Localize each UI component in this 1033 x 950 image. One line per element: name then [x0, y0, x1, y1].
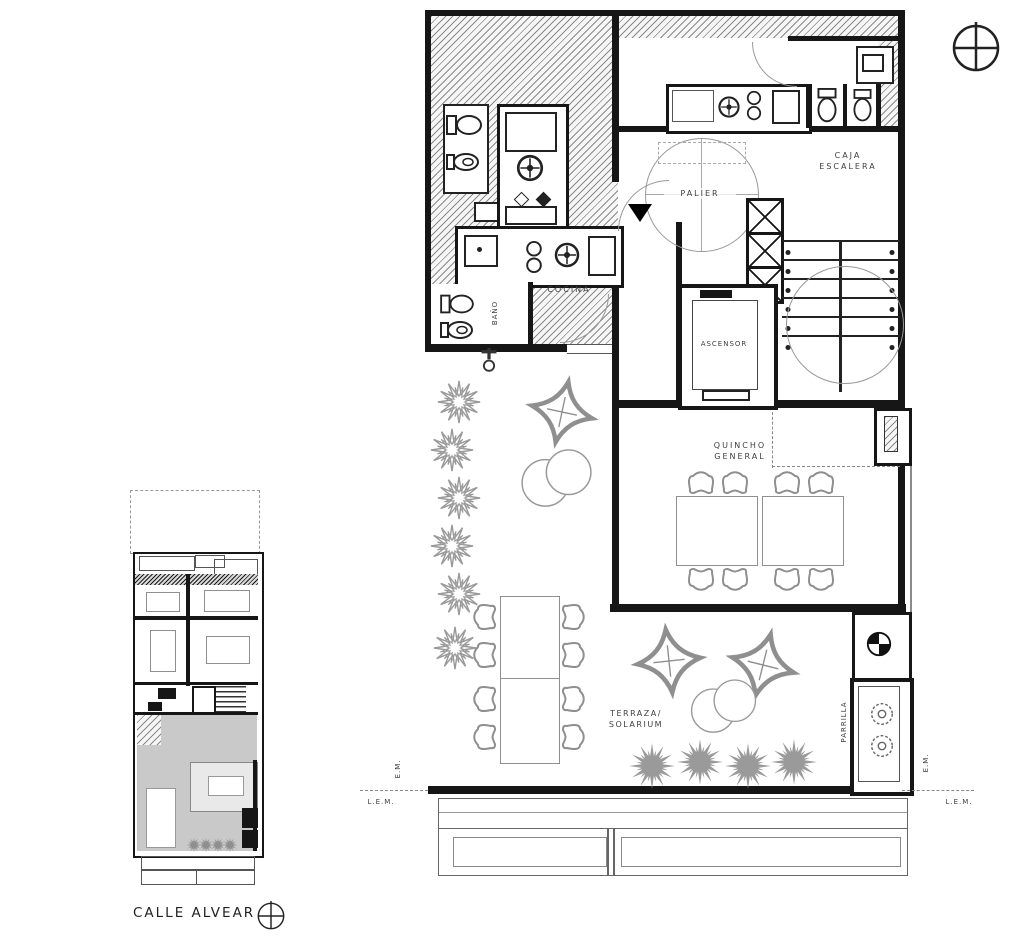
plant-icon: [222, 837, 238, 853]
plant-icon: [723, 741, 773, 791]
service-fixture: [862, 54, 884, 72]
parrilla-label: PARRILLA: [840, 682, 852, 762]
compass-icon: [950, 22, 1002, 74]
faucet-icon: [476, 348, 502, 376]
em-label-right: E.M.: [922, 748, 932, 778]
plant-icon: [769, 737, 819, 787]
chair-icon: [722, 566, 748, 592]
lem-label-right: L.E.M.: [934, 798, 984, 808]
terraza-label-line2: SOLARIUM: [596, 719, 676, 730]
chair-icon: [472, 642, 498, 668]
oven: [505, 206, 557, 225]
elevator-counterweight: [700, 290, 732, 298]
parapet-panel: [621, 837, 901, 867]
wall-stub: [843, 84, 847, 128]
lounge-chair-icon: [519, 369, 604, 454]
plant-icon: [436, 475, 482, 521]
keyplan-table: [146, 788, 176, 848]
toilet-icon: [438, 290, 476, 318]
chair-icon: [774, 566, 800, 592]
fridge: [505, 112, 557, 152]
keyplan-wall: [186, 574, 190, 686]
quincho-label: QUINCHO GENERAL: [698, 440, 782, 462]
chair-icon: [688, 470, 714, 496]
caja-label-line2: ESCALERA: [808, 161, 888, 172]
dining-table: [762, 496, 844, 566]
chair-icon: [722, 470, 748, 496]
wall: [610, 604, 906, 612]
counter-top: [672, 90, 714, 122]
keyplan-sidewalk: [196, 869, 255, 885]
keyplan-table: [206, 636, 250, 664]
keyplan-table: [150, 630, 176, 672]
sink-icon: [745, 90, 763, 122]
chair-icon: [774, 470, 800, 496]
chair-icon: [560, 604, 586, 630]
palier-label: PALIER: [664, 188, 736, 199]
chair-icon: [808, 566, 834, 592]
lem-dashed-line: [360, 790, 428, 791]
chair-icon: [560, 642, 586, 668]
chair-icon: [472, 686, 498, 712]
chair-icon: [560, 686, 586, 712]
plant-icon: [627, 741, 677, 791]
em-label-left: E.M.: [394, 754, 404, 784]
plant-icon: [429, 427, 475, 473]
parapet-divider: [607, 829, 609, 875]
wall-stub: [806, 84, 811, 128]
parapet-strip: [438, 798, 908, 830]
keyplan-parrilla: [242, 808, 258, 828]
keyplan-setback-dashed: [130, 490, 260, 554]
chair-icon: [808, 470, 834, 496]
duct: [884, 416, 898, 452]
wall-stub: [876, 84, 881, 128]
chair-icon: [688, 566, 714, 592]
wall: [788, 36, 905, 41]
counter-end: [588, 236, 616, 276]
wall: [612, 10, 619, 182]
bidet-icon: [438, 318, 478, 342]
bano-label: BAÑO: [491, 283, 505, 343]
keyplan-wall: [135, 616, 258, 620]
hatched-top-band: [618, 16, 899, 38]
keyplan-table: [204, 590, 250, 612]
plant-icon: [436, 379, 482, 425]
keyplan-terrace: [137, 715, 257, 851]
keyplan-hatch-corner: [137, 715, 161, 745]
door-arc: [618, 180, 669, 231]
washer-knob: [477, 247, 482, 252]
round-table-icon: [518, 448, 596, 510]
caja-label-line1: CAJA: [808, 150, 888, 161]
keyplan-sidewalk: [141, 869, 197, 885]
toilet-icon: [812, 88, 842, 126]
wall: [612, 232, 619, 610]
caja-escalera-label: CAJA ESCALERA: [808, 150, 888, 172]
floorplan-sheet: BAÑO COCINA PALIER CAJA ESCALERA ASCENSO…: [0, 0, 1033, 950]
guide-box: [658, 142, 746, 164]
keyplan-bath-block: [148, 702, 162, 711]
dining-table: [676, 496, 758, 566]
plant-icon: [675, 737, 725, 787]
parapet-panel: [453, 837, 607, 867]
chair-icon: [472, 604, 498, 630]
stove-burner-icon: [514, 152, 546, 184]
toilet-icon: [446, 110, 482, 140]
terraza-label-line1: TERRAZA/: [596, 708, 676, 719]
shaft-duct: [746, 232, 784, 270]
counter-sink: [772, 90, 800, 124]
grill-icon: [868, 732, 896, 760]
stair-sweep-circle: [786, 266, 904, 384]
keyplan-wall-band: [135, 574, 258, 585]
toilet-icon: [849, 88, 876, 126]
sink-icon: [524, 240, 544, 275]
keyplan-parrilla: [242, 830, 258, 848]
keyplan-table: [146, 592, 180, 612]
stove-burner-icon: [716, 94, 742, 120]
keyplan-balcony: [139, 556, 195, 571]
round-table-icon: [688, 678, 760, 736]
door-threshold: [567, 344, 612, 354]
terrace-table: [500, 596, 560, 680]
keyplan-table: [208, 776, 244, 796]
grill-icon: [868, 700, 896, 728]
stove-burner-icon: [552, 240, 582, 270]
coverage-dashed-line: [772, 412, 773, 468]
plant-icon: [429, 523, 475, 569]
lem-label-left: L.E.M.: [356, 798, 406, 808]
bidet-icon: [446, 150, 482, 174]
quincho-label-line2: GENERAL: [698, 451, 782, 462]
lem-dashed-line: [902, 790, 974, 791]
floor-drain-icon: [865, 630, 893, 658]
terrace-table: [500, 678, 560, 764]
shaft-duct: [746, 198, 784, 236]
chair-icon: [472, 724, 498, 750]
keyplan-wall: [135, 682, 258, 685]
parapet-divider: [613, 829, 615, 875]
quincho-label-line1: QUINCHO: [698, 440, 782, 451]
compass-icon: [256, 901, 286, 931]
coverage-dashed-line: [772, 466, 900, 467]
terraza-label: TERRAZA/ SOLARIUM: [596, 708, 676, 730]
ascensor-label: ASCENSOR: [680, 340, 768, 350]
parapet-strip: [438, 828, 908, 876]
street-label: CALLE ALVEAR: [133, 905, 255, 921]
elevator-door: [702, 390, 750, 401]
keyplan-stair: [216, 686, 246, 712]
chair-icon: [560, 724, 586, 750]
keyplan-bath-block: [158, 688, 176, 699]
parapet-line: [439, 812, 907, 813]
keyplan-balcony: [214, 559, 258, 575]
wall: [425, 10, 905, 16]
door-arc: [752, 42, 797, 87]
